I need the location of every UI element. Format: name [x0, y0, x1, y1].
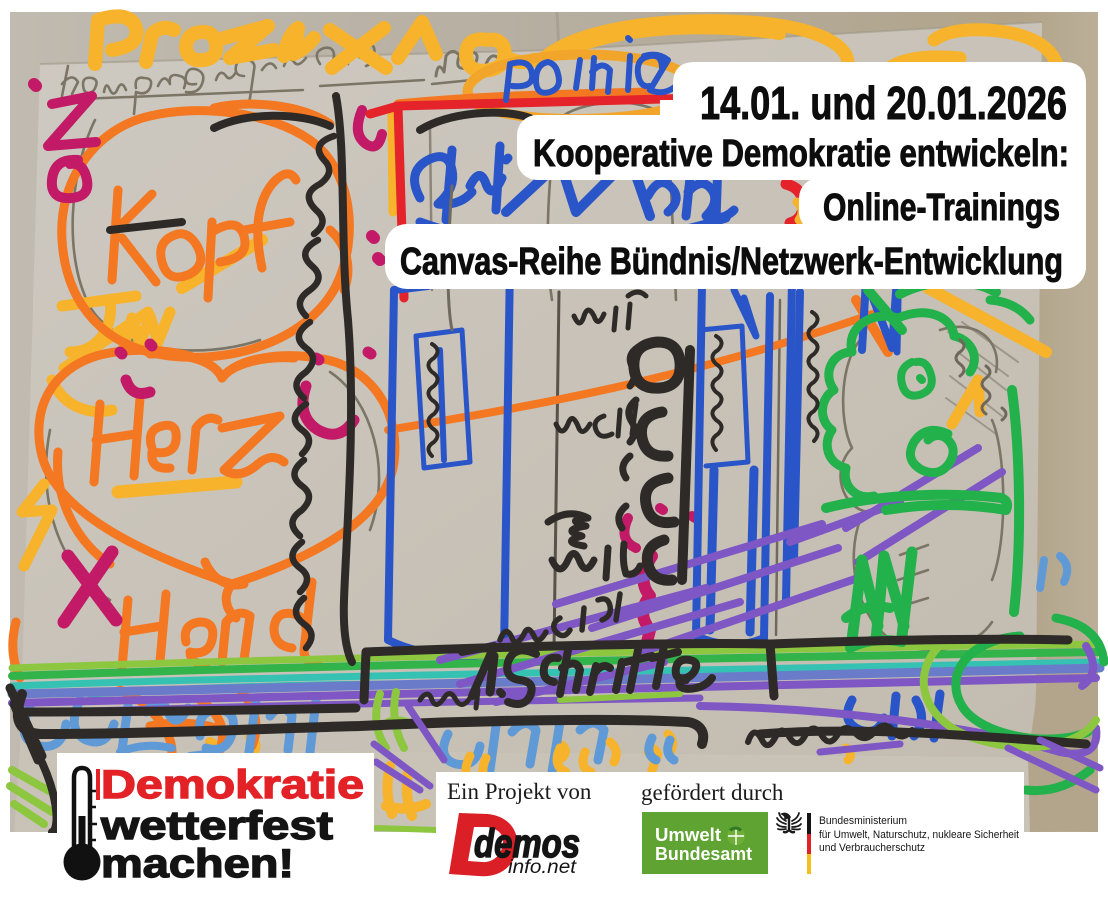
- svg-text:für Umwelt, Naturschutz, nukle: für Umwelt, Naturschutz, nukleare Sicher…: [819, 829, 1019, 841]
- svg-text:Ein Projekt von: Ein Projekt von: [447, 779, 592, 804]
- svg-text:Canvas-Reihe Bündnis/Netzwerk-: Canvas-Reihe Bündnis/Netzwerk-Entwicklun…: [400, 241, 1063, 283]
- svg-text:Umwelt: Umwelt: [655, 825, 721, 845]
- svg-text:gefördert durch: gefördert durch: [641, 780, 784, 805]
- svg-text:info.net: info.net: [508, 857, 577, 878]
- svg-text:14.01. und 20.01.2026: 14.01. und 20.01.2026: [700, 77, 1067, 129]
- svg-text:machen!: machen!: [101, 842, 294, 886]
- svg-text:Kooperative Demokratie entwick: Kooperative Demokratie entwickeln:: [533, 133, 1069, 175]
- svg-text:Bundesamt: Bundesamt: [655, 844, 752, 864]
- svg-text:Demokratie: Demokratie: [101, 763, 364, 807]
- svg-text:Bundesministerium: Bundesministerium: [819, 815, 907, 827]
- svg-text:und Verbraucherschutz: und Verbraucherschutz: [819, 842, 925, 854]
- svg-text:Online-Trainings: Online-Trainings: [823, 187, 1060, 229]
